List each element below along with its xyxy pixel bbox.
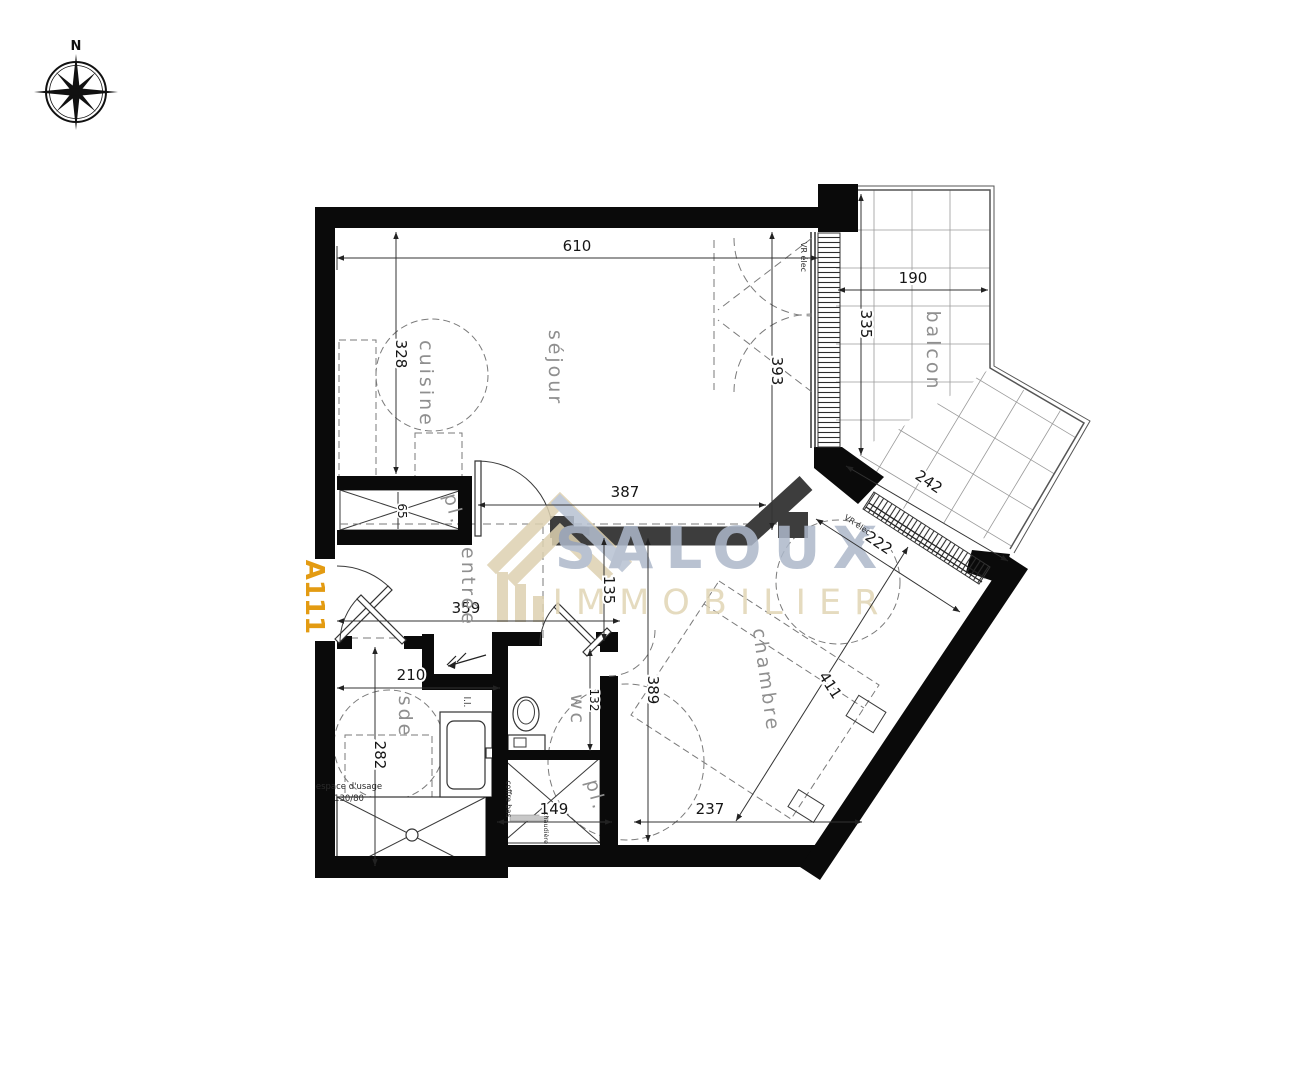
compass-north-label: N xyxy=(71,39,82,54)
entry-door-swing xyxy=(337,566,390,588)
wall-wc-left xyxy=(492,632,508,797)
sde-door-leaf xyxy=(357,595,406,644)
compass-rose: N xyxy=(34,39,118,132)
room-label-chambre: chambre xyxy=(748,627,784,734)
wall-corridor-a xyxy=(508,632,542,646)
kitchen-furniture xyxy=(339,319,488,482)
wall-balcony-corner xyxy=(818,184,858,232)
kitchen-unit xyxy=(415,433,462,482)
dim-190: 190 xyxy=(899,269,928,287)
dim-132: 132 xyxy=(587,689,601,712)
watermark-brand: SALOUX xyxy=(555,514,890,582)
dim-393: 393 xyxy=(768,357,786,386)
wall-bottom-left xyxy=(315,856,497,878)
note-lave-linge: l.l. xyxy=(461,697,471,708)
washbasin xyxy=(447,721,485,789)
wall-entree-stub-b xyxy=(404,636,422,649)
dim-282: 282 xyxy=(371,741,389,770)
dim-237: 237 xyxy=(696,800,725,818)
room-label-wc: wc xyxy=(566,694,588,726)
room-label-sde: sde xyxy=(394,696,416,739)
dim-389: 389 xyxy=(644,676,662,705)
dim-65: 65 xyxy=(395,503,409,518)
sejour-door-leaf xyxy=(475,461,481,536)
wall-left-lower xyxy=(315,641,335,878)
room-label-balcon: balcon xyxy=(922,310,944,391)
note-coffre-bas: coffre bas xyxy=(504,780,513,817)
room-label-entree: entrée xyxy=(457,547,479,627)
nightstand xyxy=(846,695,886,732)
shower-drain xyxy=(406,829,418,841)
roller-shutter-sejour xyxy=(818,233,840,447)
dim-610: 610 xyxy=(563,237,592,255)
wall-bottom-center xyxy=(497,845,815,867)
room-label-cuisine: cuisine xyxy=(415,340,437,428)
dim-328: 328 xyxy=(392,340,410,369)
room-label-sejour: séjour xyxy=(544,330,566,406)
wall-left-upper xyxy=(315,207,335,559)
wc-fixtures xyxy=(508,697,545,751)
wall-wc-bottom xyxy=(492,750,602,760)
wall-closet-bottom xyxy=(337,530,470,545)
dim-210: 210 xyxy=(397,666,426,684)
note-chaudiere: chaudière xyxy=(542,812,550,844)
dim-335: 335 xyxy=(857,310,875,339)
entry-door-leaf xyxy=(335,586,392,643)
wall-chambre-left-b xyxy=(600,676,618,845)
floor-plan-a111: SALOUX IMMOBILIER 610 328 393 190 335 24… xyxy=(0,0,1304,1080)
note-espace-usage-dims: 130/80 xyxy=(334,794,364,804)
dim-242: 242 xyxy=(912,466,946,497)
watermark: SALOUX IMMOBILIER xyxy=(496,501,891,623)
dim-387: 387 xyxy=(611,483,640,501)
floor-plan-page: SALOUX IMMOBILIER 610 328 393 190 335 24… xyxy=(0,0,1304,1080)
wall-closet-top xyxy=(337,476,470,490)
dim-135: 135 xyxy=(600,576,618,605)
note-espace-usage: espace d'usage xyxy=(316,782,382,792)
kitchen-counter xyxy=(339,340,376,478)
toilet-bowl xyxy=(513,697,539,731)
french-door-swing xyxy=(714,238,812,392)
note-vr-elec-sejour: VR élec xyxy=(799,242,809,272)
dim-411: 411 xyxy=(815,668,846,702)
unit-number-label: A111 xyxy=(299,560,329,634)
nightstand xyxy=(788,790,824,823)
wall-top xyxy=(315,207,842,228)
